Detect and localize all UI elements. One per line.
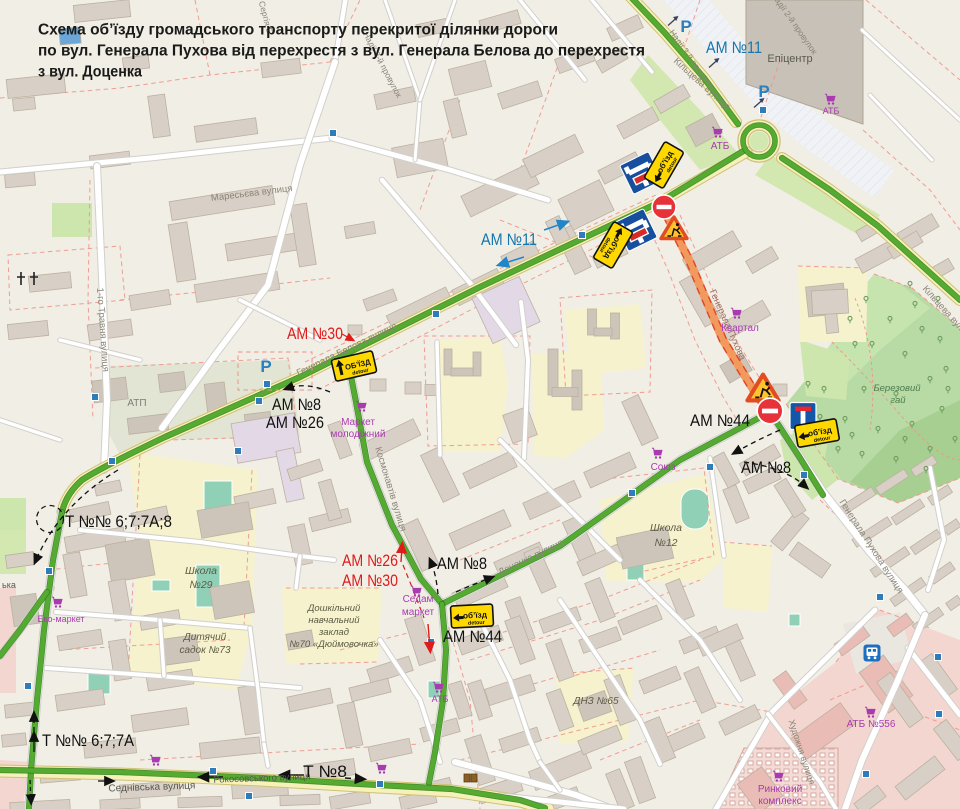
svg-text:АТБ: АТБ bbox=[823, 106, 840, 116]
svg-text:комплекс: комплекс bbox=[758, 796, 801, 807]
svg-text:Р: Р bbox=[260, 357, 271, 376]
svg-text:з вул. Доценка: з вул. Доценка bbox=[38, 64, 142, 81]
svg-text:АМ №44: АМ №44 bbox=[690, 412, 750, 430]
svg-text:Т №№ 6;7;7А: Т №№ 6;7;7А bbox=[42, 732, 134, 750]
svg-text:АМ №11: АМ №11 bbox=[481, 231, 537, 249]
svg-text:Ринковий: Ринковий bbox=[758, 784, 802, 795]
svg-text:гай: гай bbox=[890, 395, 906, 406]
svg-text:Еко-маркет: Еко-маркет bbox=[37, 614, 84, 624]
svg-text:навчальний: навчальний bbox=[308, 615, 360, 626]
svg-text:по вул. Генерала Пухова від пе: по вул. Генерала Пухова від перехрестя з… bbox=[38, 43, 645, 60]
svg-text:АМ №8: АМ №8 bbox=[272, 396, 321, 414]
svg-text:садок №73: садок №73 bbox=[179, 645, 231, 656]
svg-text:Р: Р bbox=[680, 17, 691, 36]
svg-text:Союз: Союз bbox=[651, 462, 676, 473]
svg-text:№12: №12 bbox=[654, 537, 677, 549]
svg-text:ька: ька bbox=[2, 580, 16, 590]
svg-text:№70 «Дюймовочка»: №70 «Дюймовочка» bbox=[289, 639, 378, 650]
svg-text:Квартал: Квартал bbox=[721, 323, 759, 334]
svg-text:АМ №11: АМ №11 bbox=[706, 39, 762, 57]
svg-text:АМ №44: АМ №44 bbox=[443, 628, 502, 646]
svg-text:Школа: Школа bbox=[650, 522, 682, 534]
svg-text:ДНЗ №65: ДНЗ №65 bbox=[572, 696, 619, 707]
svg-text:АМ №26: АМ №26 bbox=[342, 552, 398, 570]
svg-text:маркет: маркет bbox=[402, 607, 435, 618]
svg-text:АТП: АТП bbox=[127, 398, 146, 409]
svg-text:АТБ: АТБ bbox=[432, 694, 449, 704]
svg-text:АМ №8: АМ №8 bbox=[437, 555, 487, 573]
svg-text:АМ №30: АМ №30 bbox=[342, 572, 398, 590]
svg-text:заклад: заклад bbox=[318, 627, 349, 638]
svg-text:АМ №8: АМ №8 bbox=[741, 459, 791, 477]
svg-text:АМ №26: АМ №26 bbox=[266, 414, 324, 432]
svg-text:Епіцентр: Епіцентр bbox=[767, 53, 812, 65]
svg-text:АТБ №556: АТБ №556 bbox=[847, 719, 896, 730]
svg-text:АМ №30: АМ №30 bbox=[287, 325, 343, 343]
svg-text:№29: №29 bbox=[189, 579, 212, 591]
svg-text:молодіжний: молодіжний bbox=[331, 429, 386, 440]
svg-text:Т №№ 6;7;7А;8: Т №№ 6;7;7А;8 bbox=[65, 513, 172, 531]
svg-text:Школа: Школа bbox=[185, 565, 217, 577]
svg-text:АТБ: АТБ bbox=[711, 141, 730, 152]
svg-text:Схема об’їзду громадського тра: Схема об’їзду громадського транспорту пе… bbox=[38, 22, 558, 39]
svg-text:Т №8: Т №8 bbox=[303, 763, 347, 781]
svg-text:Маркет: Маркет bbox=[341, 417, 375, 428]
svg-text:Седам: Седам bbox=[403, 594, 434, 605]
svg-text:Березовий: Березовий bbox=[873, 383, 921, 394]
svg-text:Дошкільний: Дошкільний bbox=[307, 603, 361, 614]
svg-text:Дитячий: Дитячий bbox=[183, 632, 227, 643]
